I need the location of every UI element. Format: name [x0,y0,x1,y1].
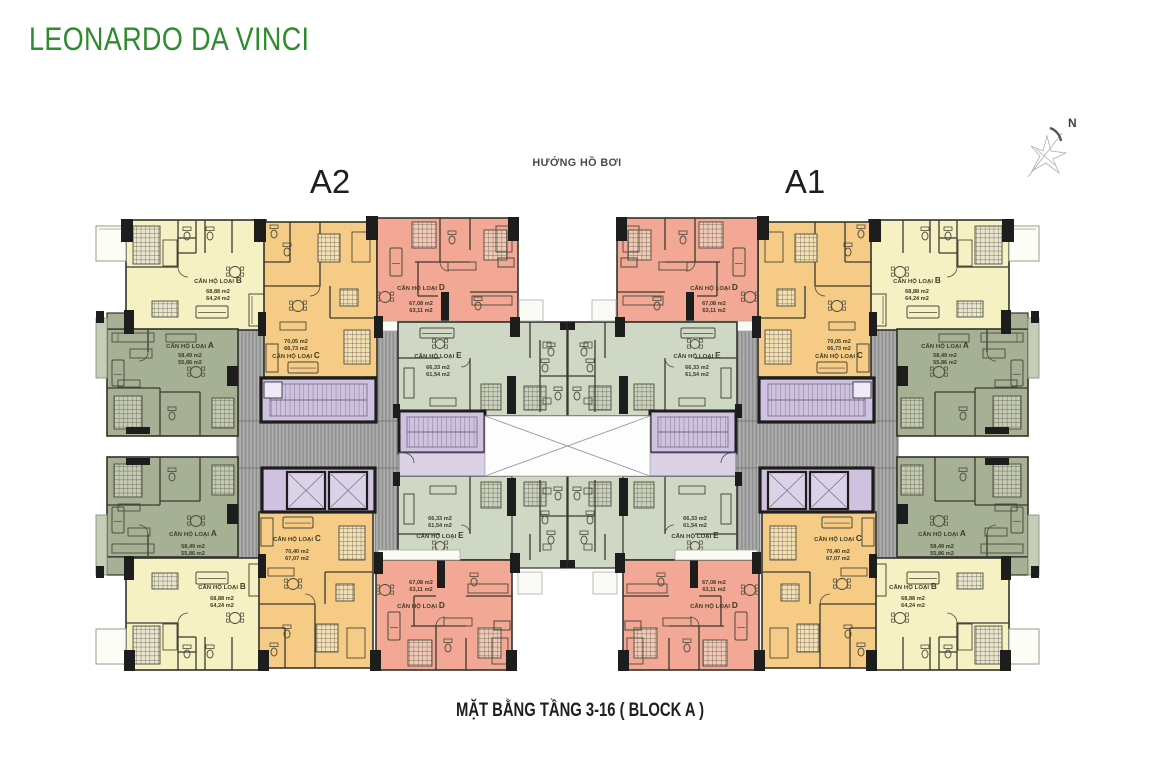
svg-text:N: N [1068,116,1077,130]
svg-text:63,11 m2: 63,11 m2 [702,308,725,314]
svg-text:66,33 m2: 66,33 m2 [683,516,707,522]
svg-text:68,88 m2: 68,88 m2 [206,289,230,295]
svg-text:61,54 m2: 61,54 m2 [426,372,450,378]
svg-text:66,33 m2: 66,33 m2 [428,516,452,522]
svg-text:64,24 m2: 64,24 m2 [905,296,929,302]
svg-text:70,40 m2: 70,40 m2 [285,549,309,555]
svg-text:70,05 m2: 70,05 m2 [284,339,308,345]
svg-text:68,88 m2: 68,88 m2 [905,289,929,295]
svg-text:61,54 m2: 61,54 m2 [428,523,452,529]
svg-text:A2: A2 [310,163,350,200]
svg-text:A1: A1 [785,163,825,200]
svg-text:66,73 m2: 66,73 m2 [284,346,308,352]
svg-text:55,86 m2: 55,86 m2 [181,551,205,557]
svg-text:63,11 m2: 63,11 m2 [409,587,432,593]
svg-text:68,88 m2: 68,88 m2 [901,596,925,602]
svg-text:64,24 m2: 64,24 m2 [901,603,925,609]
svg-text:61,54 m2: 61,54 m2 [683,523,707,529]
svg-text:58,49 m2: 58,49 m2 [930,544,954,550]
svg-text:67,07 m2: 67,07 m2 [285,556,309,562]
svg-text:HƯỚNG HỒ BƠI: HƯỚNG HỒ BƠI [532,156,621,169]
svg-text:64,24 m2: 64,24 m2 [206,296,230,302]
svg-text:70,05 m2: 70,05 m2 [827,339,851,345]
svg-text:66,73 m2: 66,73 m2 [827,346,851,352]
svg-text:67,07 m2: 67,07 m2 [826,556,850,562]
svg-text:67,08 m2: 67,08 m2 [702,301,726,307]
svg-text:66,33 m2: 66,33 m2 [426,365,450,371]
svg-text:58,49 m2: 58,49 m2 [181,544,205,550]
svg-text:64,24 m2: 64,24 m2 [210,603,234,609]
svg-text:67,08 m2: 67,08 m2 [409,301,433,307]
svg-text:55,86 m2: 55,86 m2 [178,360,202,366]
svg-text:67,08 m2: 67,08 m2 [409,580,433,586]
svg-text:MẶT BẰNG TẦNG 3-16 ( BLOCK A ): MẶT BẰNG TẦNG 3-16 ( BLOCK A ) [456,699,704,720]
svg-text:67,08 m2: 67,08 m2 [702,580,726,586]
svg-text:LEONARDO DA VINCI: LEONARDO DA VINCI [29,22,309,58]
svg-text:66,33 m2: 66,33 m2 [685,365,709,371]
svg-text:58,49 m2: 58,49 m2 [933,353,957,359]
svg-text:55,86 m2: 55,86 m2 [930,551,954,557]
svg-text:63,11 m2: 63,11 m2 [409,308,432,314]
svg-text:63,11 m2: 63,11 m2 [702,587,725,593]
svg-text:55,86 m2: 55,86 m2 [933,360,957,366]
svg-text:58,49 m2: 58,49 m2 [178,353,202,359]
svg-text:68,88 m2: 68,88 m2 [210,596,234,602]
svg-text:61,54 m2: 61,54 m2 [685,372,709,378]
svg-text:70,40 m2: 70,40 m2 [826,549,850,555]
